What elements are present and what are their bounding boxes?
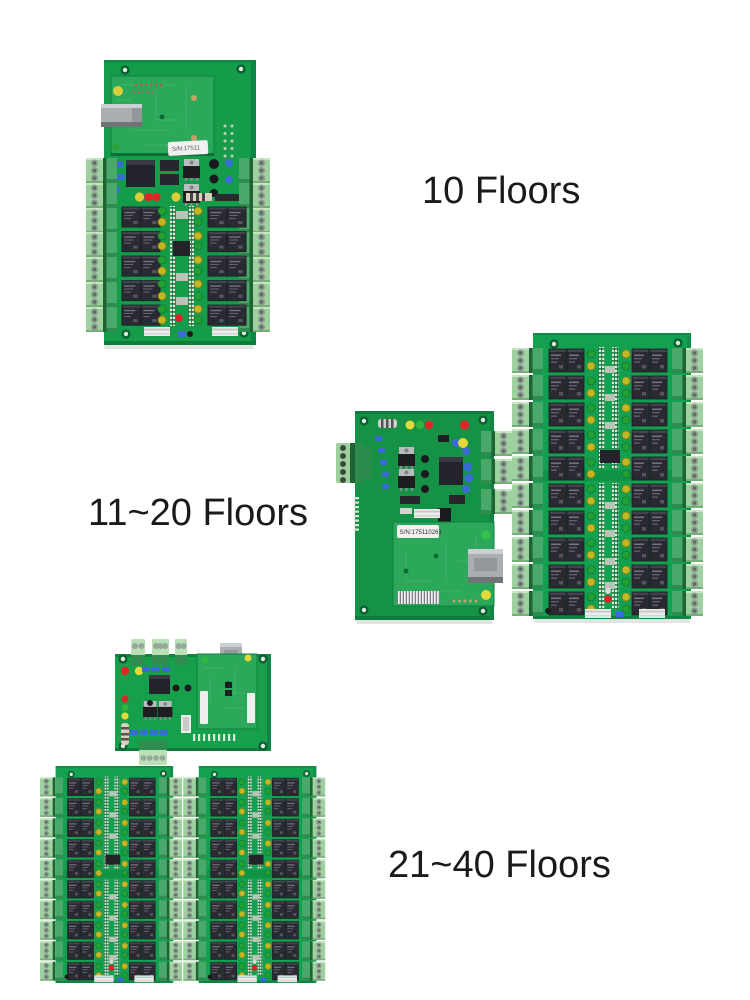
svg-text:10 Floors: 10 Floors [422,170,580,212]
svg-text:11~20 Floors: 11~20 Floors [88,492,308,534]
svg-text:21~40 Floors: 21~40 Floors [388,844,611,886]
svg-text:S/N:175110261: S/N:175110261 [400,529,443,536]
